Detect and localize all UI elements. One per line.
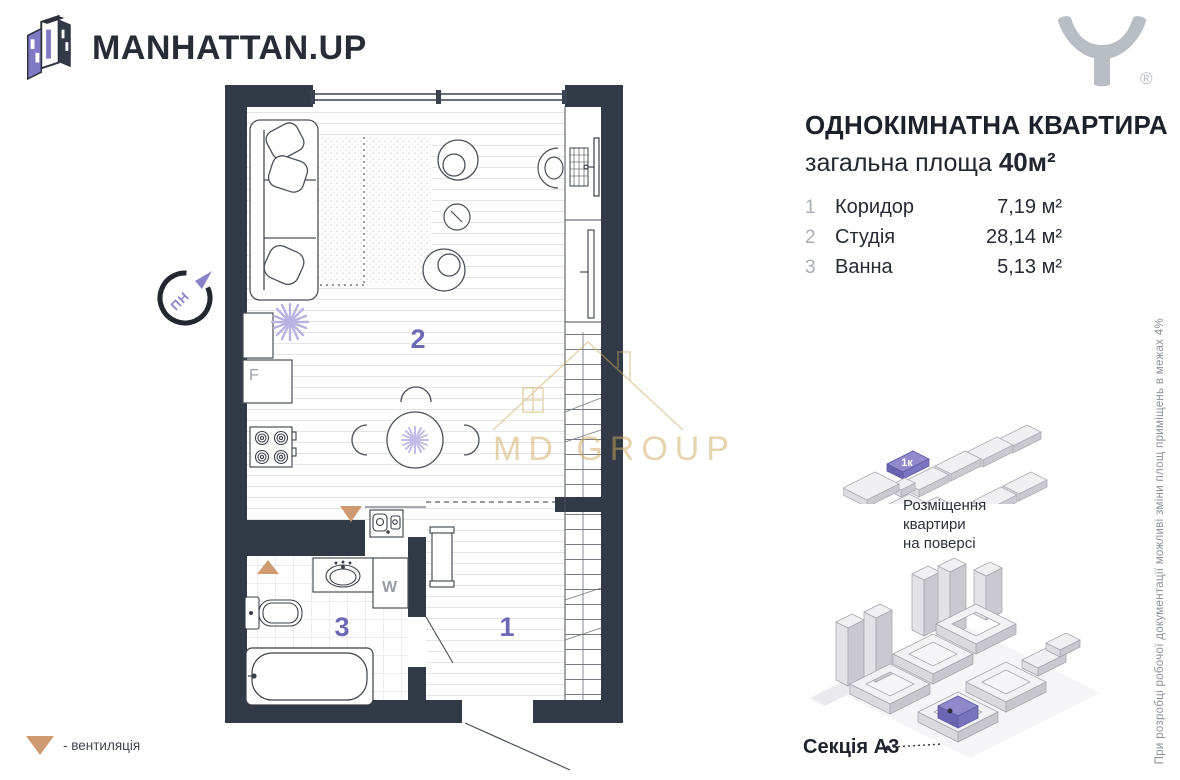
building-3d (800, 558, 1130, 763)
room-area: 5,13 м² (997, 256, 1062, 279)
sofa (250, 120, 318, 300)
room-area: 7,19 м² (997, 196, 1062, 219)
entrance-door-swing (465, 723, 570, 770)
room-list: 1 Коридор 7,19 м² 2 Студія 28,14 м² 3 Ва… (805, 196, 1062, 286)
apartment-title: ОДНОКІМНАТНА КВАРТИРА (805, 110, 1168, 141)
unit-type-label: 1к (901, 457, 913, 469)
radiator (430, 527, 454, 587)
washing-machine: W (373, 558, 408, 608)
room-row: 2 Студія 28,14 м² (805, 226, 1062, 256)
stairs (565, 332, 601, 700)
section-leader-line (893, 744, 942, 747)
armchair-bottom (423, 249, 465, 291)
tv-panel (580, 230, 594, 318)
room-number: 3 (805, 257, 835, 279)
room-area: 28,14 м² (986, 226, 1062, 249)
ventilation-legend-label: - вентиляція (63, 738, 140, 753)
brand-logo: MANHATTAN.UP (20, 12, 367, 84)
floor-placement-diagram: 1к (843, 424, 1058, 504)
window (310, 90, 567, 104)
room-name: Ванна (835, 256, 893, 279)
section-label: Секція А3 (803, 736, 899, 759)
floor-plan: F (150, 80, 680, 780)
room-number: 2 (805, 227, 835, 249)
apartment-subtitle: загальна площа 40м² (805, 147, 1056, 178)
monitor (584, 138, 599, 196)
bathtub (246, 648, 373, 705)
area-label: загальна площа (805, 149, 992, 177)
compass-north-icon: ПН (152, 265, 218, 331)
room-row: 1 Коридор 7,19 м² (805, 196, 1062, 226)
room-label-bath: 3 (334, 612, 349, 642)
armchair-top (438, 140, 478, 180)
floor-placement-caption: Розміщення квартири на поверсі (903, 496, 986, 553)
developer-logo-icon: ® (1050, 12, 1154, 95)
page: MANHATTAN.UP ® (0, 0, 1180, 780)
disclaimer-note: При розробці робочої документації можлив… (1154, 318, 1166, 764)
registered-mark: ® (1140, 69, 1153, 88)
stove (250, 427, 296, 467)
brand-name: MANHATTAN.UP (92, 29, 367, 68)
washer-label: W (382, 579, 398, 596)
plant (272, 304, 308, 340)
kitchen-cabinet (243, 313, 273, 358)
room-number: 1 (805, 197, 835, 219)
room-label-studio: 2 (410, 324, 425, 354)
room-name: Коридор (835, 196, 914, 219)
area-value: 40м² (999, 147, 1056, 177)
washbasin (313, 558, 373, 592)
brand-building-icon (20, 12, 78, 84)
fridge: F (243, 360, 292, 403)
ventilation-legend-icon (26, 736, 54, 755)
room-row: 3 Ванна 5,13 м² (805, 256, 1062, 286)
room-label-hall: 1 (499, 612, 514, 642)
fridge-label: F (249, 367, 259, 384)
compass-label: ПН (168, 289, 192, 313)
toilet (245, 597, 302, 629)
side-table (444, 204, 470, 230)
ventilation-legend: - вентиляція (26, 736, 140, 755)
table-plant (402, 427, 428, 453)
room-name: Студія (835, 226, 895, 249)
